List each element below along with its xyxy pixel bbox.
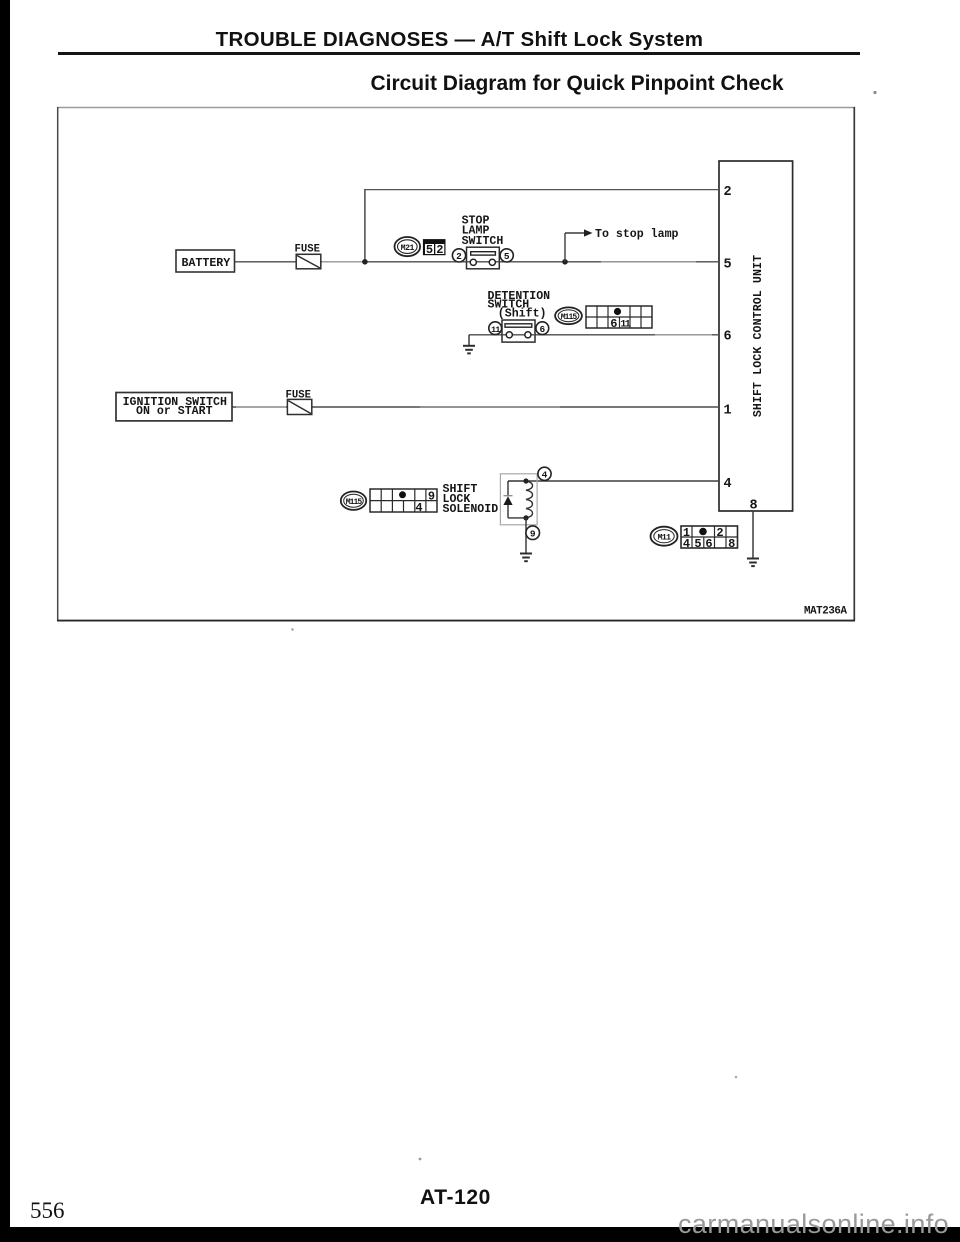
svg-text:MAT236A: MAT236A xyxy=(804,606,847,618)
svg-text:M115: M115 xyxy=(561,313,578,322)
svg-text:6: 6 xyxy=(539,324,545,335)
svg-text:SOLENOID: SOLENOID xyxy=(443,503,499,516)
svg-text:To stop lamp: To stop lamp xyxy=(595,228,679,241)
svg-text:(Shift): (Shift) xyxy=(498,307,547,320)
svg-text:4: 4 xyxy=(415,501,422,515)
svg-text:8: 8 xyxy=(728,537,735,551)
svg-text:9: 9 xyxy=(530,529,536,540)
svg-text:SWITCH: SWITCH xyxy=(462,235,504,248)
svg-text:6: 6 xyxy=(610,317,617,331)
svg-text:6: 6 xyxy=(705,537,712,551)
svg-text:4: 4 xyxy=(683,537,690,551)
svg-text:5: 5 xyxy=(724,257,732,272)
svg-text:ON or START: ON or START xyxy=(136,405,213,418)
svg-text:6: 6 xyxy=(724,330,732,345)
svg-text:M21: M21 xyxy=(401,244,415,253)
svg-text:M115: M115 xyxy=(346,498,363,507)
svg-text:5: 5 xyxy=(426,243,433,257)
svg-text:SHIFT LOCK CONTROL UNIT: SHIFT LOCK CONTROL UNIT xyxy=(752,255,765,417)
svg-text:4: 4 xyxy=(542,470,548,481)
svg-text:M11: M11 xyxy=(658,534,671,543)
svg-text:2: 2 xyxy=(456,251,462,262)
svg-text:2: 2 xyxy=(724,185,732,200)
svg-text:5: 5 xyxy=(694,537,701,551)
svg-text:9: 9 xyxy=(428,490,435,504)
svg-text:1: 1 xyxy=(724,404,732,419)
svg-text:BATTERY: BATTERY xyxy=(182,257,231,270)
svg-text:2: 2 xyxy=(716,526,723,540)
svg-text:11: 11 xyxy=(491,325,500,335)
svg-text:4: 4 xyxy=(724,477,732,492)
svg-text:5: 5 xyxy=(504,251,510,262)
svg-text:2: 2 xyxy=(436,243,443,257)
